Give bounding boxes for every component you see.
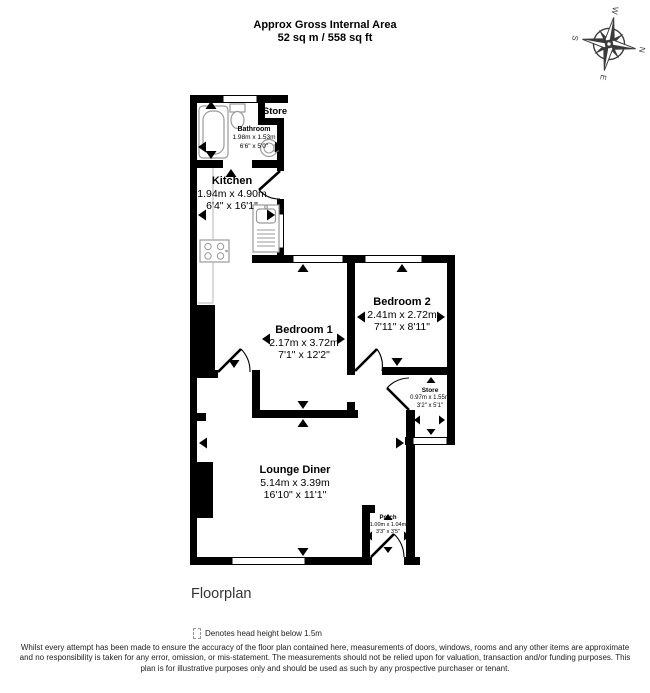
chimney-breast bbox=[197, 462, 213, 518]
bedroom1-window bbox=[293, 256, 343, 263]
porch-door bbox=[371, 534, 404, 557]
chimney-breast bbox=[197, 305, 215, 371]
compass-n: N bbox=[637, 46, 647, 53]
head-height-legend: Denotes head height below 1.5m bbox=[193, 628, 322, 639]
kitchen-label: Kitchen 1.94m x 4.90m 6'4" x 16'1" bbox=[197, 175, 266, 212]
legend-text: Denotes head height below 1.5m bbox=[205, 629, 322, 638]
bathroom-label: Bathroom 1.98m x 1.53m 6'6" x 5'0" bbox=[233, 125, 276, 151]
head-height-icon bbox=[193, 628, 201, 639]
kitchen-sink-icon bbox=[253, 205, 279, 252]
lounge-window bbox=[232, 558, 305, 565]
bedroom2-label: Bedroom 2 2.41m x 2.72m 7'11" x 8'11" bbox=[367, 296, 436, 333]
store-label: Store 0.97m x 1.55m 3'2" x 5'1" bbox=[410, 387, 450, 410]
store-window bbox=[413, 438, 447, 445]
porch-label: Porch 1.00m x 1.04m 3'3" x 3'5" bbox=[370, 515, 406, 536]
bedroom1-label: Bedroom 1 2.17m x 3.72m 7'1" x 12'2" bbox=[269, 324, 338, 361]
compass-rose: N E S W bbox=[564, 0, 650, 87]
bedroom2-window bbox=[365, 256, 422, 263]
hob-icon bbox=[200, 240, 229, 262]
bathroom-window bbox=[223, 96, 257, 103]
floorplan-page: Approx Gross Internal Area 52 sq m / 558… bbox=[0, 0, 650, 693]
lounge-label: Lounge Diner 5.14m x 3.39m 16'10" x 11'1… bbox=[260, 464, 331, 501]
compass-w: W bbox=[610, 6, 620, 15]
bedroom2-door bbox=[355, 349, 382, 371]
disclaimer-text: Whilst every attempt has been made to en… bbox=[15, 643, 635, 674]
floorplan-caption: Floorplan bbox=[191, 586, 251, 602]
compass-e: E bbox=[598, 74, 608, 81]
compass-s: S bbox=[570, 35, 580, 42]
store-door bbox=[387, 378, 409, 410]
store-top-label: Store bbox=[263, 106, 287, 117]
